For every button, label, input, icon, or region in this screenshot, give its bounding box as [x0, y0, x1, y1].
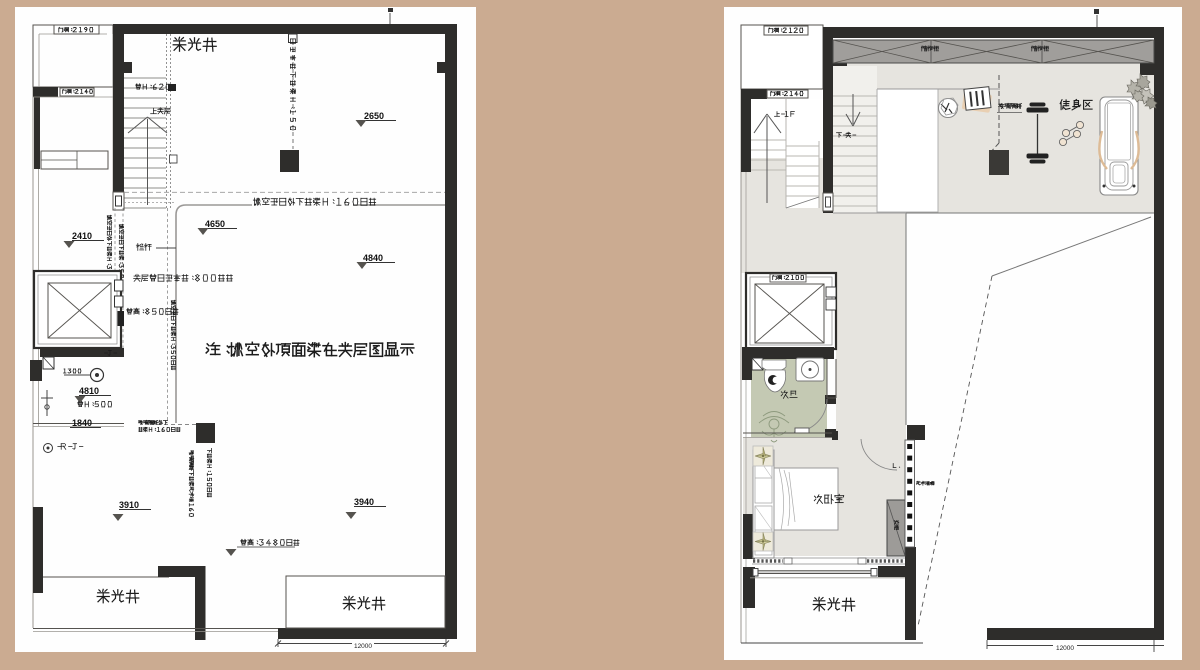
svg-text:4650: 4650 — [205, 219, 225, 229]
svg-text:12000: 12000 — [354, 643, 372, 650]
svg-text:3940: 3940 — [354, 497, 374, 507]
svg-text:4840: 4840 — [363, 253, 383, 263]
svg-text:3910: 3910 — [119, 500, 139, 510]
svg-text:4810: 4810 — [79, 386, 99, 396]
svg-text:2650: 2650 — [364, 111, 384, 121]
svg-text:12000: 12000 — [1056, 645, 1074, 652]
svg-text:1840: 1840 — [72, 418, 92, 428]
svg-text:2410: 2410 — [72, 231, 92, 241]
